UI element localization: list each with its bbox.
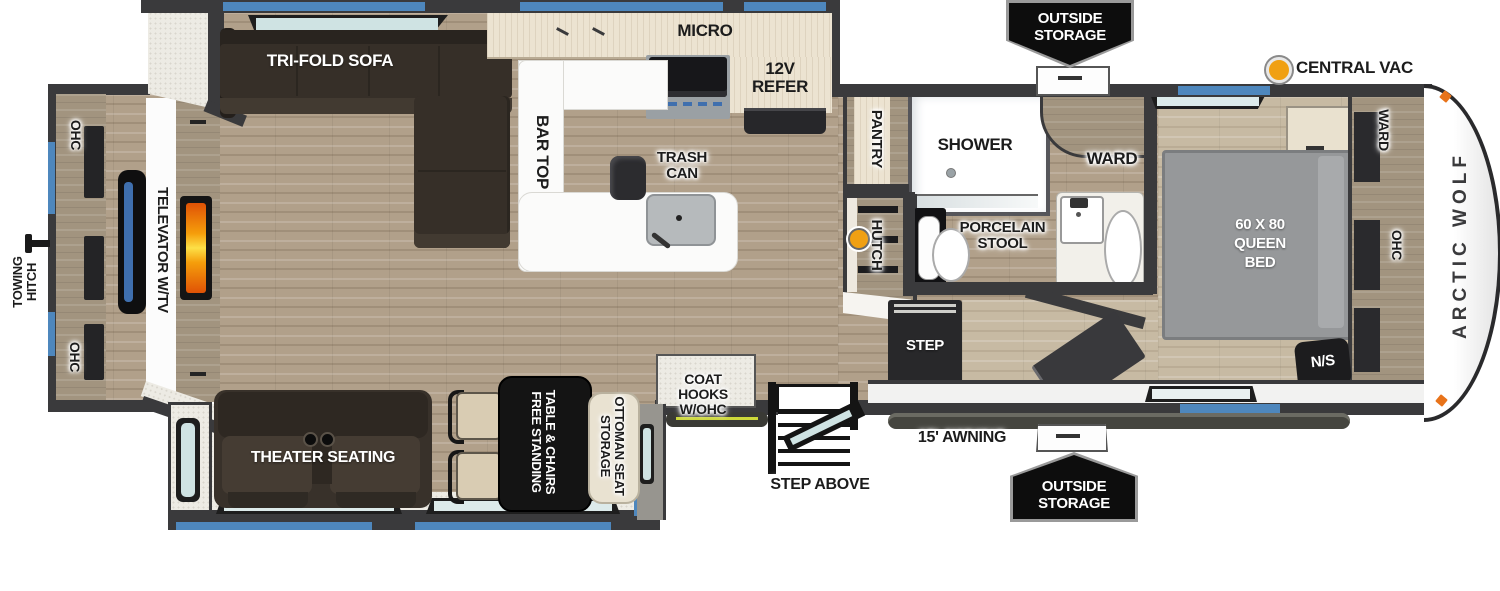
top-window-3 <box>744 2 828 11</box>
theater-footrest-left <box>228 492 308 508</box>
cabinet-handle-bottom <box>190 372 206 376</box>
vanity-faucet-dot <box>1076 212 1081 217</box>
trash-line2: CAN <box>636 166 728 182</box>
step-edge-1 <box>894 304 956 307</box>
trash-line1: TRASH <box>636 150 728 166</box>
trash-can-label: TRASH CAN <box>636 150 728 186</box>
cap-corner-panel <box>148 6 210 108</box>
bath-ward-cabinet <box>1040 88 1150 158</box>
stool-line1: PORCELAIN <box>945 220 1060 236</box>
central-vac-outlet <box>848 228 870 250</box>
dinette-chair-seat-2 <box>456 452 502 500</box>
outside-storage-bottom-door <box>1036 424 1108 452</box>
awning-label: 15' AWNING <box>908 430 1016 448</box>
outside-storage-top-badge: OUTSIDE STORAGE <box>1006 0 1134 68</box>
cap-cabinet-door-2 <box>84 236 104 300</box>
dinette-chair-seat-1 <box>456 392 502 440</box>
outside-storage-bottom-handle <box>1056 434 1080 438</box>
sofa-seam-3 <box>438 46 440 96</box>
cupholder-right <box>320 432 335 447</box>
floorplan-canvas: TOWING HITCH OHC OHC TELEVATOR W/TV TRI-… <box>0 0 1500 591</box>
stove-knob-3 <box>683 102 692 106</box>
cabinet-handle-top <box>190 120 206 124</box>
step-label: STEP <box>892 338 958 356</box>
refer-line1: 12V <box>738 60 822 78</box>
wardrobe-panel-3 <box>1354 308 1380 372</box>
refrigerator <box>744 108 826 134</box>
cupholder-left <box>303 432 318 447</box>
slide-bottom-window-strip-1 <box>176 522 372 530</box>
vanity-oval-sink <box>1104 210 1142 288</box>
tv-screen <box>124 182 133 302</box>
theater-footrest-right <box>336 492 416 508</box>
outside-storage-top-door <box>1036 66 1110 96</box>
outside-storage-top-handle <box>1058 76 1082 80</box>
cap-left-window-upper <box>48 142 55 214</box>
porcelain-stool-label: PORCELAIN STOOL <box>945 220 1060 256</box>
hutch-label: HUTCH <box>868 205 884 285</box>
sofa-window-glass <box>256 18 438 30</box>
bed-line3: BED <box>1195 254 1325 273</box>
stove-knob-5 <box>713 102 722 106</box>
central-vac-icon <box>1266 57 1292 83</box>
dinette-line1: FREE STANDING <box>529 374 543 510</box>
pantry-label: PANTRY <box>868 99 884 179</box>
stool-line2: STOOL <box>945 236 1060 252</box>
coat-hooks-label: COAT HOOKS W/OHC <box>658 372 748 404</box>
sink-drain <box>676 215 682 221</box>
outside-storage-bottom-text: OUTSIDE STORAGE <box>1010 478 1138 513</box>
step-above-label: STEP ABOVE <box>762 477 878 497</box>
outside-storage-top-text: OUTSIDE STORAGE <box>1006 10 1134 45</box>
towing-hitch-line2: HITCH <box>25 242 39 322</box>
slide-right-window-glass <box>643 428 651 480</box>
outside-storage-bottom-line1: OUTSIDE <box>1010 478 1138 495</box>
outside-storage-bottom-line2: STORAGE <box>1010 495 1138 512</box>
refer-line2: REFER <box>738 78 822 96</box>
bedroom-bottom-window-glass <box>1152 389 1250 399</box>
top-window-2 <box>520 2 723 11</box>
slide-left-window-glass <box>181 423 195 497</box>
wall-hutch-toilet <box>903 192 915 296</box>
bar-top-label: BAR TOP <box>533 92 551 212</box>
outside-storage-bottom-badge: OUTSIDE STORAGE <box>1010 452 1138 522</box>
micro-label: MICRO <box>630 22 780 42</box>
rear-top-window <box>1178 86 1270 95</box>
cap-ohc-bottom-label: OHC <box>66 335 82 379</box>
wall-pantry-hutch <box>845 184 909 196</box>
ottoman-line2: OTTOMAN SEAT <box>612 379 626 513</box>
top-window-1 <box>223 2 425 11</box>
dinette-label: FREE STANDING TABLE & CHAIRS <box>527 374 559 510</box>
shower-label: SHOWER <box>925 136 1025 156</box>
towing-hitch-line1: TOWING <box>11 242 25 322</box>
outside-storage-top-line2: STORAGE <box>1006 27 1134 44</box>
stair-rail-left <box>768 382 776 474</box>
ottoman-line1: STORAGE <box>598 379 612 513</box>
bedroom-ohc-label: OHC <box>1388 220 1404 270</box>
cap-ohc-top-label: OHC <box>67 113 83 157</box>
stove-knob-4 <box>698 102 707 106</box>
shower-door <box>912 194 1038 208</box>
awning-bar <box>888 413 1350 429</box>
shower-drain <box>946 168 956 178</box>
coat-hooks-line2: W/OHC <box>658 402 748 417</box>
central-vac-label: CENTRAL VAC <box>1296 58 1436 78</box>
wall-bath-bedroom <box>1144 84 1157 294</box>
queen-bed-label: 60 X 80 QUEEN BED <box>1195 216 1325 274</box>
outside-storage-top-line1: OUTSIDE <box>1006 10 1134 27</box>
stove-knob-2 <box>668 102 677 106</box>
vanity-faucet <box>1070 198 1088 208</box>
televator-label: TELEVATOR W/TV <box>152 120 170 380</box>
bed-line2: QUEEN <box>1195 235 1325 254</box>
refer-label: 12V REFER <box>738 60 822 100</box>
bedroom-window-glass <box>1157 97 1259 106</box>
bath-ward-label: WARD <box>1068 150 1156 170</box>
tri-fold-sofa-label: TRI-FOLD SOFA <box>230 52 430 72</box>
cap-cabinet-door-3 <box>84 324 104 380</box>
brand-label: ARCTIC WOLF <box>1450 100 1470 390</box>
cap-bottom-wall <box>48 400 154 412</box>
bed-line1: 60 X 80 <box>1195 216 1325 235</box>
step-edge-2 <box>894 310 956 313</box>
towing-hitch-label: TOWING HITCH <box>11 242 43 322</box>
sofa-chaise-seam <box>418 170 506 172</box>
bedroom-ward-label: WARD <box>1375 100 1391 160</box>
fireplace-flame <box>186 203 206 293</box>
coat-hooks-line1: COAT HOOKS <box>658 372 748 402</box>
led-strip <box>676 417 758 420</box>
dinette-line2: TABLE & CHAIRS <box>543 374 557 510</box>
slide-bottom-window-strip-2 <box>415 522 611 530</box>
sofa-chaise <box>414 96 510 248</box>
rear-top-wall <box>838 84 1432 97</box>
cap-left-window-lower <box>48 312 55 356</box>
theater-seating-label: THEATER SEATING <box>248 450 398 468</box>
cap-cabinet-door-1 <box>84 126 104 198</box>
wardrobe-panel-2 <box>1354 220 1380 290</box>
ottoman-label: STORAGE OTTOMAN SEAT <box>596 379 628 513</box>
